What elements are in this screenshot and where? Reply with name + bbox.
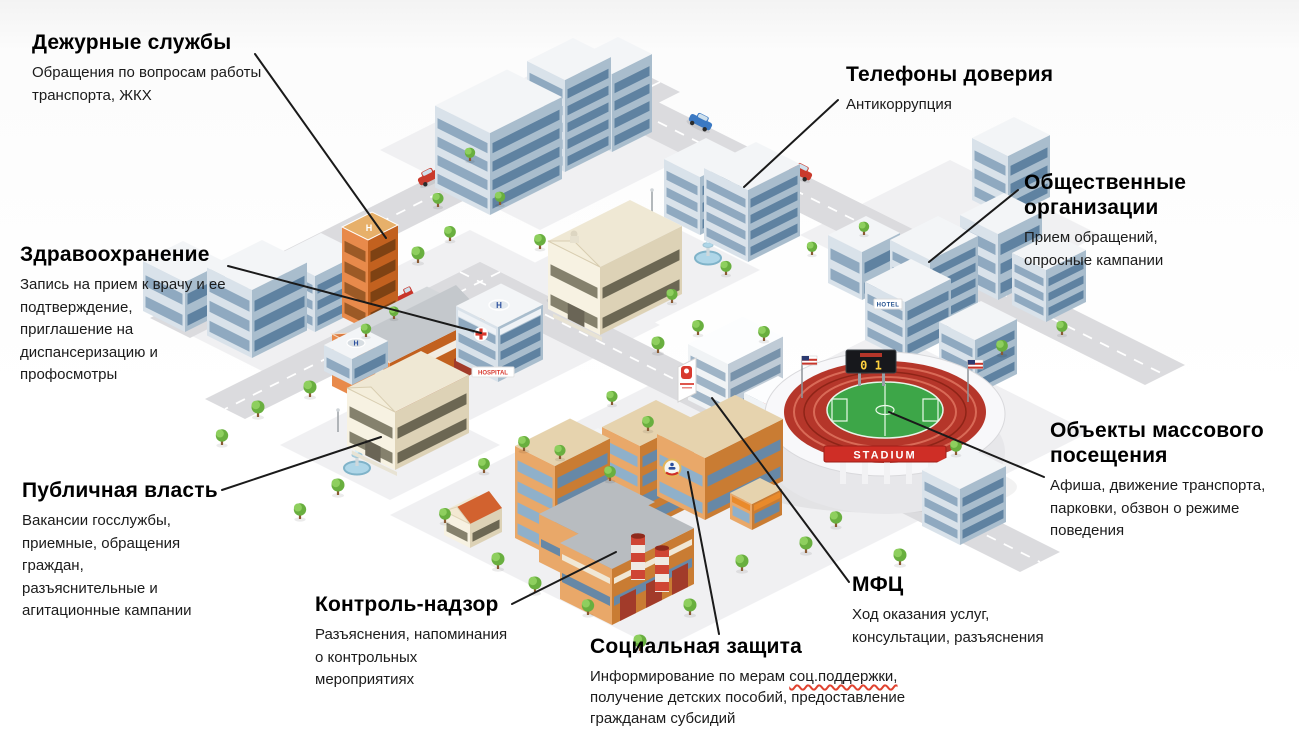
callout-public-organizations: Общественные организации Прием обращений… [1024,170,1234,272]
tree [642,416,654,433]
callout-title: Здравоохранение [20,242,260,267]
tree [534,234,546,251]
tree [859,222,869,238]
callout-desc: Вакансии госслужбы, приемные, обращения … [22,510,262,623]
callout-desc: Антикоррупция [846,94,1096,117]
spellcheck-marked-text: соц.поддержки, [789,668,897,685]
hotel-sign: HOTEL [877,303,900,309]
callout-title: Общественные организации [1024,170,1234,220]
tree [294,503,306,521]
tree [652,337,665,356]
tree [478,458,490,475]
callout-mass-visit-objects: Объекты массового посещения Афиша, движе… [1050,418,1299,543]
callout-trust-phones: Телефоны доверия Антикоррупция [846,62,1096,117]
tree [830,511,842,529]
tree [606,391,617,408]
tree [465,148,475,164]
callout-title: Телефоны доверия [846,62,1096,87]
callout-title: Дежурные службы [32,30,292,55]
callout-mfc: МФЦ Ход оказания услуг, консультации, ра… [852,572,1102,649]
tree [361,324,371,340]
tree [518,436,530,453]
tree [412,247,425,266]
tree [304,381,317,400]
helipad-letter: H [366,223,373,233]
tree [495,192,505,208]
callout-control-supervision: Контроль-надзор Разъяснения, напоминания… [315,592,565,692]
tree [332,479,345,498]
callout-public-authority: Публичная власть Вакансии госслужбы, при… [22,478,262,623]
tree [666,289,677,306]
tree [800,537,813,556]
helipad-letter: H [353,341,358,348]
tree [720,261,731,278]
tree [432,193,443,210]
factory-chimney [655,545,669,592]
street-lamp [650,188,654,212]
callout-title: Контроль-надзор [315,592,565,617]
tree [996,340,1008,357]
scoreboard: 0 1 [860,359,882,373]
callout-desc: Афиша, движение транспорта, парковки, об… [1050,475,1299,543]
tree [684,599,697,618]
callout-title: Объекты массового посещения [1050,418,1299,468]
tree [736,555,749,574]
tree [554,445,565,462]
hospital-sign: HOSPITAL [478,371,508,377]
tree [252,401,265,420]
tree [582,599,594,617]
callout-desc: Запись на прием к врачу и ее подтвержден… [20,274,260,387]
tree [439,508,451,525]
tree [216,429,228,447]
callout-desc: Прием обращений, опросные кампании [1024,227,1234,272]
factory-chimney [631,533,645,580]
infographic-city-diagram: HHOTELHHOSPITALHSTADIUM0 1 Дежурные служ… [0,0,1299,733]
tree [492,553,505,572]
callout-desc: Обращения по вопросам работы транспорта,… [32,62,292,107]
helipad-letter: H [496,301,502,310]
tree [444,226,456,243]
callout-title: МФЦ [852,572,1102,597]
callout-duty-services: Дежурные службы Обращения по вопросам ра… [32,30,292,107]
tree [894,549,907,568]
tree [604,466,616,483]
callout-desc: Разъяснения, напоминания о контрольных м… [315,624,565,692]
tree [1056,321,1067,338]
tree [758,326,770,343]
tree [692,320,704,337]
callout-healthcare: Здравоохранение Запись на прием к врачу … [20,242,260,387]
callout-desc: Информирование по мерам соц.поддержки, п… [590,666,950,729]
callout-desc: Ход оказания услуг, консультации, разъяс… [852,604,1102,649]
callout-title: Публичная власть [22,478,262,503]
stadium-banner: STADIUM [853,450,916,462]
tree [807,242,817,258]
